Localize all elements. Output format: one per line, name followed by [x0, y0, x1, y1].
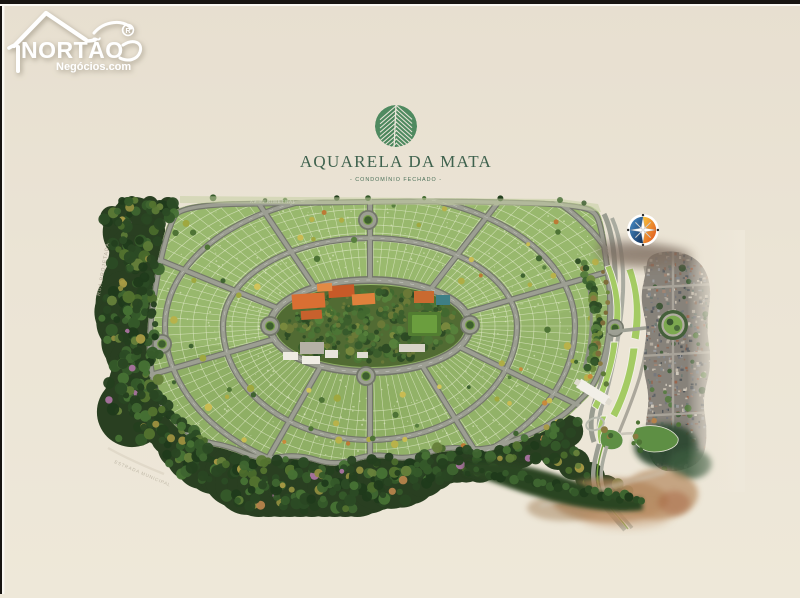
svg-text:Negócios.com: Negócios.com — [56, 61, 131, 73]
svg-text:R: R — [125, 28, 130, 35]
svg-text:AQUARELA DA MATA: AQUARELA DA MATA — [300, 152, 492, 171]
svg-text:- CONDOMÍNIO FECHADO -: - CONDOMÍNIO FECHADO - — [350, 176, 442, 183]
svg-text:AV PERIMETRAL: AV PERIMETRAL — [250, 199, 296, 204]
svg-text:NORTÃO: NORTÃO — [21, 36, 124, 63]
